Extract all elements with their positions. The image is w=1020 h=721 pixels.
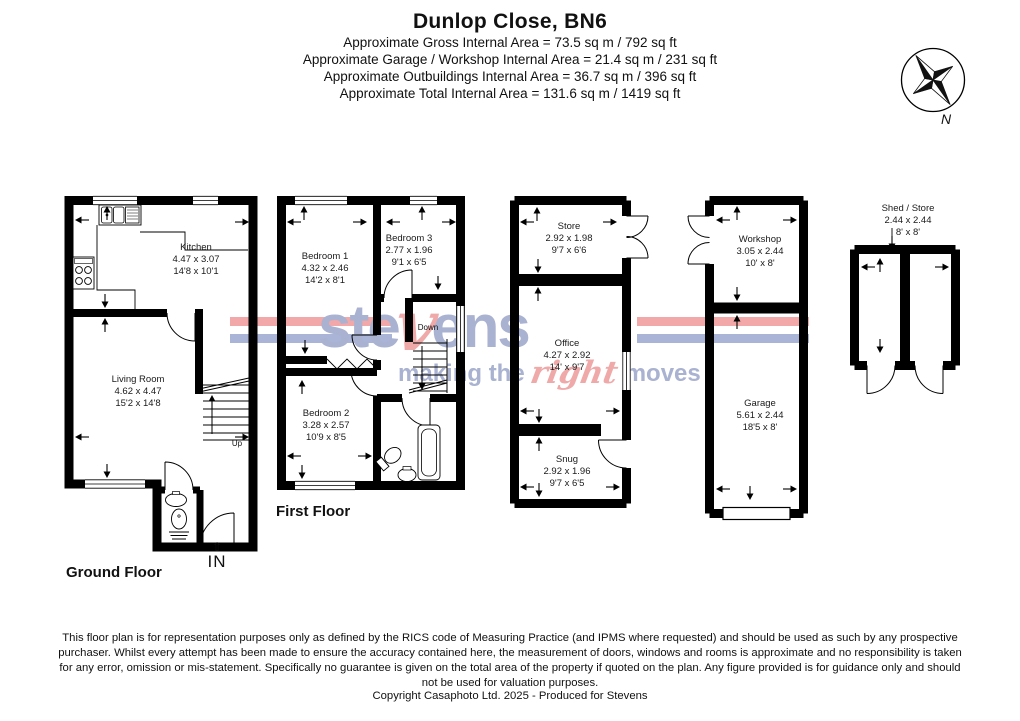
room-metric: 4.27 x 2.92 (543, 350, 590, 362)
room-imperial: 14'2 x 8'1 (301, 275, 348, 287)
ob2-workshop-double-doors (688, 216, 710, 264)
ff-stairs (409, 339, 447, 393)
kitchen-label: Kitchen 4.47 x 3.07 14'8 x 10'1 (172, 242, 219, 278)
first-floor-title: First Floor (276, 503, 350, 520)
page-title: Dunlop Close, BN6 (0, 10, 1020, 34)
room-name: Store (545, 221, 592, 233)
bedroom2-label: Bedroom 2 3.28 x 2.57 10'9 x 8'5 (302, 408, 349, 444)
shed-walls (855, 245, 956, 370)
compass-north-label: N (941, 111, 952, 127)
room-name: Garage (736, 398, 783, 410)
room-imperial: 14' x 9'7 (543, 362, 590, 374)
bedroom1-label: Bedroom 1 4.32 x 2.46 14'2 x 8'1 (301, 251, 348, 287)
entrance-text: IN (208, 553, 227, 570)
room-name: Living Room (112, 374, 165, 386)
room-metric: 2.77 x 1.96 (385, 245, 432, 257)
office-label: Office 4.27 x 2.92 14' x 9'7 (543, 338, 590, 374)
copyright-text: Copyright Casaphoto Ltd. 2025 - Produced… (0, 690, 1020, 702)
room-metric: 5.61 x 2.44 (736, 410, 783, 422)
floorplan-page: Dunlop Close, BN6 Approximate Gross Inte… (0, 0, 1020, 721)
store-label: Store 2.92 x 1.98 9'7 x 6'6 (545, 221, 592, 257)
outbuildings-area-line: Approximate Outbuildings Internal Area =… (0, 69, 1020, 85)
room-imperial: 10' x 8' (736, 258, 783, 270)
toilet-icon (172, 509, 187, 529)
room-imperial: 10'9 x 8'5 (302, 432, 349, 444)
ob1-store-double-doors (627, 216, 649, 258)
living-room-label: Living Room 4.62 x 4.47 15'2 x 14'8 (112, 374, 165, 410)
room-metric: 4.47 x 3.07 (172, 254, 219, 266)
ff-bathroom-fixtures (375, 425, 440, 482)
total-area-line: Approximate Total Internal Area = 131.6 … (0, 86, 1020, 102)
sink-icon (398, 469, 416, 482)
disclaimer-text: This floor plan is for representation pu… (54, 631, 966, 691)
gf-kitchen-units (73, 205, 248, 309)
ob1-snug-door (599, 440, 627, 468)
room-imperial: 8' x 8' (882, 227, 935, 239)
stairs-up-label: Up (232, 439, 242, 448)
room-name: Kitchen (172, 242, 219, 254)
garage-door (723, 508, 790, 520)
gf-stairs (199, 378, 249, 440)
gf-wc-fixtures (166, 492, 190, 540)
room-metric: 3.05 x 2.44 (736, 246, 783, 258)
stove-icon (73, 257, 94, 289)
room-name: Bedroom 1 (301, 251, 348, 263)
room-name: Office (543, 338, 590, 350)
header: Dunlop Close, BN6 Approximate Gross Inte… (0, 10, 1020, 102)
garage-area-line: Approximate Garage / Workshop Internal A… (0, 52, 1020, 68)
sink-icon (166, 494, 187, 507)
room-imperial: 9'7 x 6'6 (545, 245, 592, 257)
ff-doors (351, 270, 430, 426)
room-imperial: 18'5 x 8' (736, 422, 783, 434)
room-name: Bedroom 3 (385, 233, 432, 245)
room-metric: 2.92 x 1.96 (543, 466, 590, 478)
room-metric: 2.92 x 1.98 (545, 233, 592, 245)
room-metric: 4.32 x 2.46 (301, 263, 348, 275)
gf-dimension-arrows (75, 206, 249, 478)
workshop-label: Workshop 3.05 x 2.44 10' x 8' (736, 234, 783, 270)
snug-label: Snug 2.92 x 1.96 9'7 x 6'5 (543, 454, 590, 490)
room-imperial: 15'2 x 14'8 (112, 398, 165, 410)
garage-label: Garage 5.61 x 2.44 18'5 x 8' (736, 398, 783, 434)
room-metric: 4.62 x 4.47 (112, 386, 165, 398)
stairs-down-label: Down (418, 323, 438, 332)
entrance-label: ⇧ IN (208, 542, 227, 570)
room-name: Workshop (736, 234, 783, 246)
room-imperial: 9'1 x 6'5 (385, 257, 432, 269)
gross-area-line: Approximate Gross Internal Area = 73.5 s… (0, 35, 1020, 51)
first-floor-plan (272, 194, 472, 506)
ground-floor-title: Ground Floor (66, 564, 162, 581)
bedroom3-label: Bedroom 3 2.77 x 1.96 9'1 x 6'5 (385, 233, 432, 269)
room-metric: 2.44 x 2.44 (882, 215, 935, 227)
ob1-office-window (622, 352, 630, 390)
room-imperial: 14'8 x 10'1 (172, 266, 219, 278)
room-name: Bedroom 2 (302, 408, 349, 420)
shed-store-label: Shed / Store 2.44 x 2.44 8' x 8' (882, 203, 935, 239)
ff-closet-bifold-doors (327, 359, 377, 369)
room-name: Snug (543, 454, 590, 466)
room-name: Shed / Store (882, 203, 935, 215)
room-metric: 3.28 x 2.57 (302, 420, 349, 432)
room-imperial: 9'7 x 6'5 (543, 478, 590, 490)
